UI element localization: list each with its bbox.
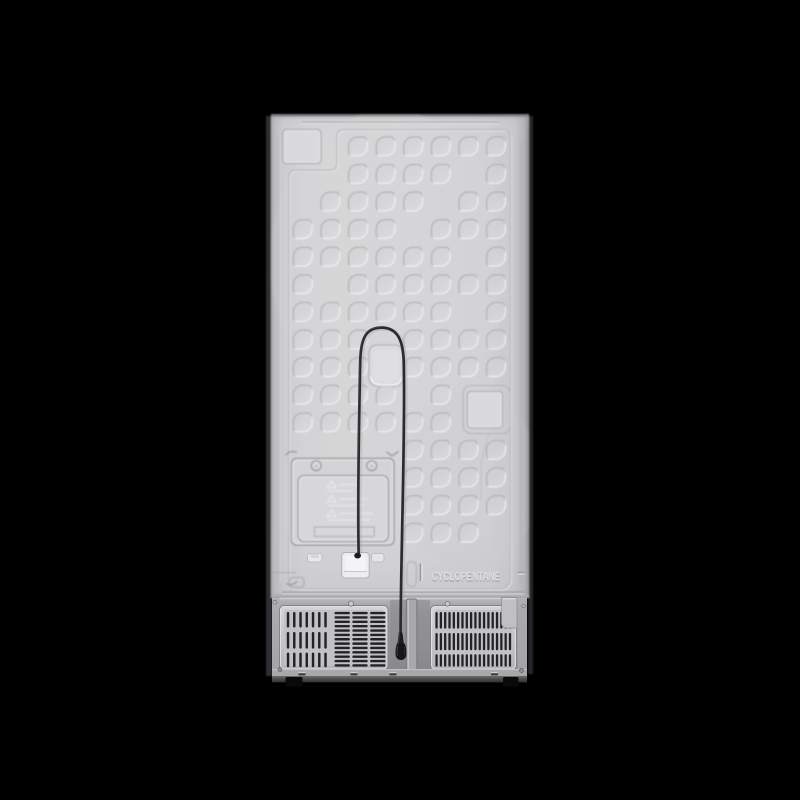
svg-text:CYCLOPENTANE: CYCLOPENTANE	[432, 570, 501, 584]
